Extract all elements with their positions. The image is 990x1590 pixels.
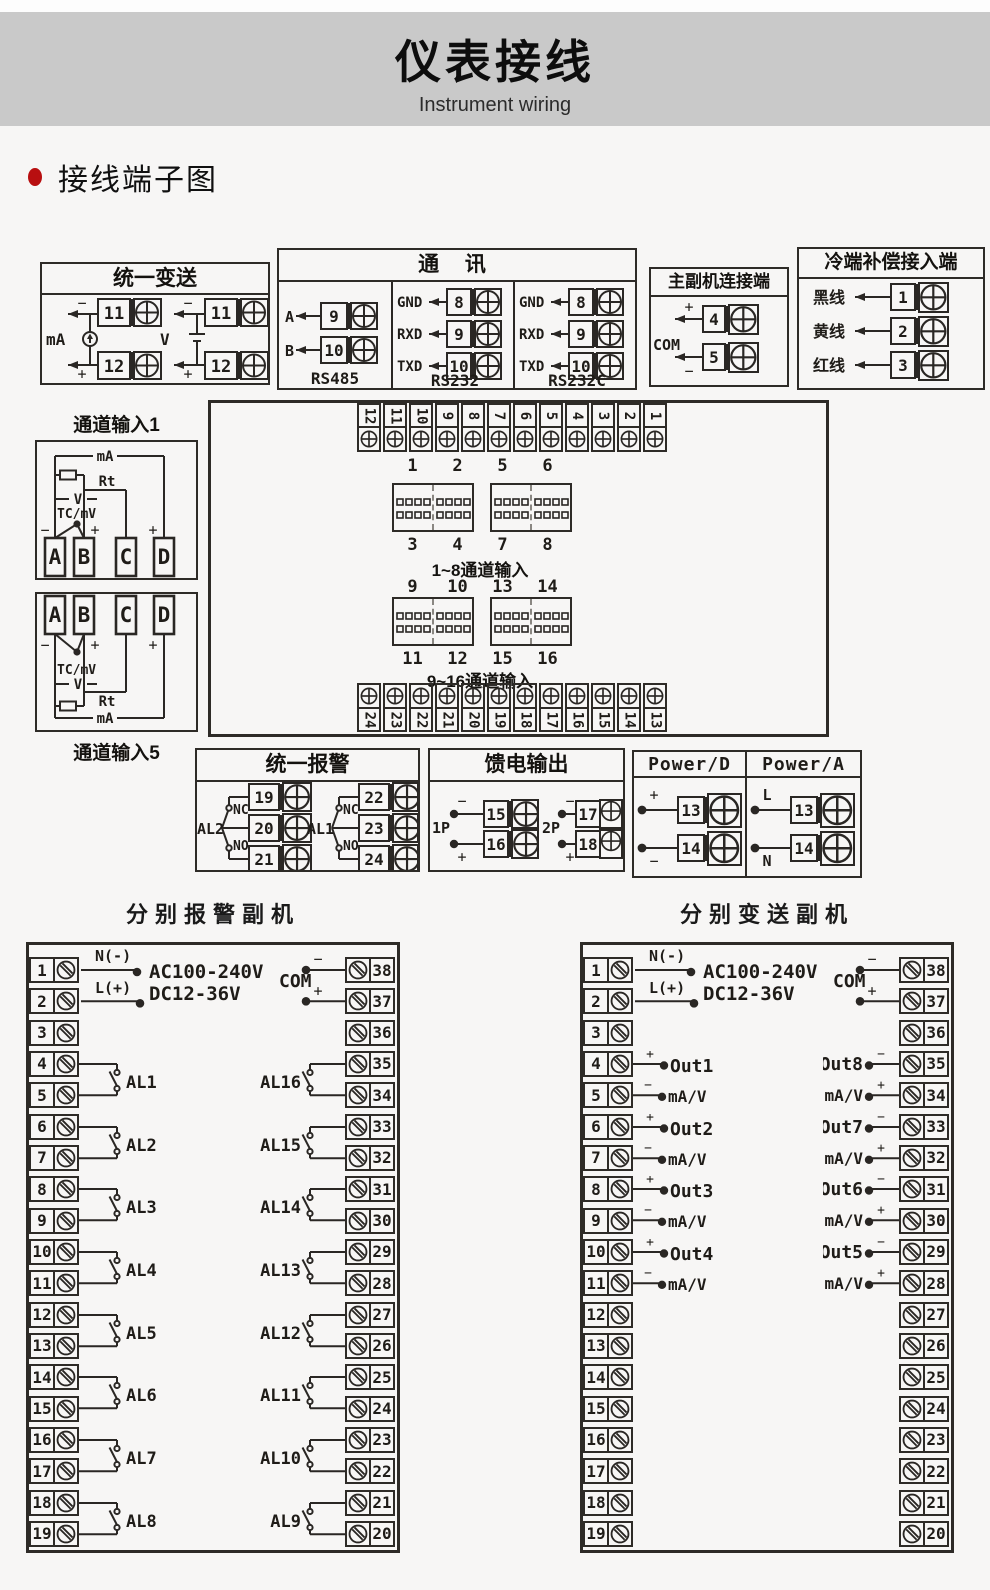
svg-text:+: +	[877, 1078, 885, 1093]
terminal: 10	[29, 1239, 79, 1265]
screw-terminal-icon	[899, 1302, 925, 1328]
svg-text:2P: 2P	[542, 819, 560, 837]
terminal-number: 14	[583, 1364, 609, 1390]
svg-text:2: 2	[898, 322, 908, 341]
svg-text:−: −	[644, 1266, 652, 1281]
terminal-number: 5	[539, 403, 563, 428]
svg-text:+: +	[148, 636, 157, 654]
screw-terminal-icon	[899, 957, 925, 983]
svg-text:D: D	[158, 545, 171, 569]
terminal: 26	[899, 1333, 949, 1359]
terminal-number: 3	[583, 1020, 609, 1046]
svg-text:−: −	[40, 521, 49, 539]
terminal-number: 24	[923, 1396, 949, 1422]
svg-text:AL11: AL11	[260, 1386, 301, 1406]
terminal-number: 12	[357, 403, 381, 428]
terminal-number: 11	[29, 1270, 55, 1296]
terminal-number: 10	[409, 403, 433, 428]
terminal: 3	[583, 1020, 633, 1046]
svg-text:Rt: Rt	[99, 694, 116, 710]
analog-output: Out7 − mA/V +	[823, 1114, 899, 1177]
connector-number: 11	[392, 649, 433, 669]
terminal: 25	[345, 1364, 395, 1390]
terminal: 4	[565, 403, 589, 452]
screw-terminal-icon	[617, 426, 641, 452]
terminal: 37	[899, 988, 949, 1014]
terminal-number: 29	[369, 1239, 395, 1265]
alarm-slave-box: 1 2 3 4 5	[26, 942, 400, 1553]
svg-text:A: A	[49, 545, 62, 569]
analog-output-graphic: Out6 − mA/V +	[823, 1176, 899, 1239]
screw-terminal-icon	[345, 1458, 371, 1484]
terminal-number: 6	[29, 1114, 55, 1140]
screw-terminal-icon	[53, 1458, 79, 1484]
screw-terminal-icon	[607, 1208, 633, 1234]
terminal-number: 4	[29, 1051, 55, 1077]
svg-text:+: +	[90, 521, 99, 539]
alarm-slave-title: 分别报警副机	[26, 897, 400, 929]
feed-output-box: 馈电输出 1P − 15 + 16 2P − 17 + 18	[428, 748, 625, 872]
svg-text:3: 3	[898, 356, 908, 375]
power-d-title: Power/D	[634, 752, 745, 778]
svg-text:21: 21	[254, 850, 273, 869]
svg-text:+: +	[649, 786, 658, 804]
terminal: 1	[29, 957, 79, 983]
svg-text:D: D	[158, 603, 171, 627]
terminal: 2	[29, 988, 79, 1014]
screw-terminal-icon	[53, 1051, 79, 1077]
connector-block-3	[392, 597, 474, 646]
terminal: 5	[539, 403, 563, 452]
terminal: 13	[29, 1333, 79, 1359]
terminal-number: 26	[369, 1333, 395, 1359]
svg-text:NC: NC	[233, 803, 249, 818]
power-d-col: Power/D + 13 − 14	[634, 752, 747, 876]
unified-alarm-box: 统一报警 NC AL2 NO 19 20 21 NC AL1 NO 22 23 …	[195, 748, 420, 872]
svg-text:红线: 红线	[813, 356, 845, 375]
svg-text:GND: GND	[519, 295, 544, 311]
alarm-contact: AL11	[241, 1364, 345, 1427]
terminal: 27	[899, 1302, 949, 1328]
connector-block-2	[490, 483, 572, 532]
terminal: 22	[899, 1458, 949, 1484]
terminal: 34	[899, 1082, 949, 1108]
terminal: 14	[583, 1364, 633, 1390]
transmit-slave-right-outputs: Out8 − mA/V + Out7 −	[823, 1051, 899, 1302]
terminal-number: 9	[435, 403, 459, 428]
terminal: 17	[583, 1458, 633, 1484]
svg-text:8: 8	[576, 293, 586, 312]
terminal-number: 22	[409, 707, 433, 732]
screw-terminal-icon	[345, 957, 371, 983]
alarm-slave-left-terminals: 1 2 3 4 5	[29, 957, 79, 1547]
svg-text:NC: NC	[343, 803, 359, 818]
terminal: 30	[899, 1208, 949, 1234]
svg-text:16: 16	[486, 835, 505, 854]
connector-number: 10	[437, 577, 478, 597]
terminal: 24	[345, 1396, 395, 1422]
screw-terminal-icon	[53, 1396, 79, 1422]
terminal: 3	[29, 1020, 79, 1046]
svg-text:AL14: AL14	[260, 1198, 301, 1218]
terminal-number: 28	[923, 1270, 949, 1296]
cold-comp-box: 冷端补偿接入端 黑线 1 黄线 2 红线 3	[797, 247, 985, 390]
alarm-contact-graphic: AL7	[79, 1427, 189, 1490]
terminal: 33	[899, 1114, 949, 1140]
terminal-number: 21	[435, 707, 459, 732]
comm-box: 通 讯 A 9 B 10 RS485 GND 8 RXD 9 TXD 10 RS…	[277, 248, 637, 390]
screw-terminal-icon	[513, 683, 537, 709]
screw-terminal-icon	[345, 1051, 371, 1077]
svg-text:RS232: RS232	[431, 371, 479, 388]
terminal-number: 24	[369, 1396, 395, 1422]
terminal-number: 7	[29, 1145, 55, 1171]
terminal-number: 9	[583, 1208, 609, 1234]
screw-terminal-icon	[643, 683, 667, 709]
svg-text:黄线: 黄线	[813, 322, 845, 341]
terminal-number: 33	[369, 1114, 395, 1140]
terminal-number: 12	[29, 1302, 55, 1328]
feed-output-title: 馈电输出	[430, 750, 623, 782]
screw-terminal-icon	[565, 683, 589, 709]
analog-output-graphic: + Out3 − mA/V	[633, 1176, 773, 1239]
screw-terminal-icon	[345, 1145, 371, 1171]
terminal: 35	[899, 1051, 949, 1077]
terminal-number: 25	[369, 1364, 395, 1390]
connector-number: 12	[437, 649, 478, 669]
alarm-contact: AL4	[79, 1239, 189, 1302]
screw-terminal-icon	[607, 1458, 633, 1484]
screw-terminal-icon	[345, 1082, 371, 1108]
alarm-contact-graphic: AL8	[79, 1490, 189, 1553]
terminal: 9	[29, 1208, 79, 1234]
terminal-number: 2	[583, 988, 609, 1014]
svg-text:+: +	[877, 1141, 885, 1156]
connector-number: 8	[527, 535, 568, 555]
terminal-number: 20	[923, 1521, 949, 1547]
terminal: 12	[583, 1302, 633, 1328]
svg-text:RS232C: RS232C	[548, 371, 606, 388]
svg-text:V: V	[74, 492, 83, 508]
screw-terminal-icon	[435, 683, 459, 709]
power-a-title: Power/A	[747, 752, 860, 778]
alarm-contact-graphic: AL15	[241, 1114, 345, 1177]
svg-text:−: −	[877, 1239, 885, 1250]
terminal: 14	[617, 683, 641, 732]
terminal: 19	[29, 1521, 79, 1547]
svg-text:Out2: Out2	[670, 1119, 713, 1140]
alarm-slave-right-contacts: AL16 AL15	[241, 1051, 345, 1552]
svg-text:15: 15	[486, 805, 505, 824]
svg-text:AL12: AL12	[260, 1324, 301, 1344]
svg-text:+: +	[646, 1114, 654, 1125]
svg-text:23: 23	[364, 819, 383, 838]
screw-terminal-icon	[345, 1490, 371, 1516]
terminal: 5	[583, 1082, 633, 1108]
svg-text:mA/V: mA/V	[824, 1086, 863, 1105]
svg-text:TC/mV: TC/mV	[57, 507, 96, 522]
alarm-contact-graphic: AL1	[79, 1051, 189, 1114]
alarm-contact: AL12	[241, 1302, 345, 1365]
terminal-number: 7	[487, 403, 511, 428]
screw-terminal-icon	[607, 1396, 633, 1422]
svg-text:9: 9	[329, 307, 339, 326]
screw-terminal-icon	[53, 1208, 79, 1234]
terminal: 1	[643, 403, 667, 452]
terminal-number: 13	[29, 1333, 55, 1359]
screw-terminal-icon	[53, 1145, 79, 1171]
screw-terminal-icon	[607, 1270, 633, 1296]
screw-terminal-icon	[607, 1490, 633, 1516]
terminal-number: 5	[583, 1082, 609, 1108]
power-a-wiring-graphic: L 13 N 14	[747, 778, 858, 874]
terminal: 15	[591, 683, 615, 732]
svg-text:COM: COM	[653, 336, 680, 354]
screw-terminal-icon	[607, 1302, 633, 1328]
screw-terminal-icon	[899, 1490, 925, 1516]
transmit-slave-title: 分别变送副机	[580, 897, 954, 929]
terminal: 36	[899, 1020, 949, 1046]
svg-text:Out7: Out7	[823, 1117, 863, 1138]
screw-terminal-icon	[607, 1051, 633, 1077]
terminal-number: 11	[383, 403, 407, 428]
connector-number: 3	[392, 535, 433, 555]
connector-number: 2	[437, 456, 478, 476]
screw-terminal-icon	[607, 1521, 633, 1547]
terminal-number: 25	[923, 1364, 949, 1390]
terminal-number: 4	[583, 1051, 609, 1077]
terminal-number: 35	[369, 1051, 395, 1077]
terminal-number: 37	[369, 988, 395, 1014]
terminal-number: 32	[923, 1145, 949, 1171]
screw-terminal-icon	[899, 1176, 925, 1202]
terminal: 21	[899, 1490, 949, 1516]
transmit-slave-left-terminals: 1 2 3 4 5	[583, 957, 633, 1547]
alarm-contact: AL16	[241, 1051, 345, 1114]
terminal-number: 20	[461, 707, 485, 732]
terminal-number: 18	[513, 707, 537, 732]
screw-terminal-icon	[53, 1302, 79, 1328]
terminal: 20	[345, 1521, 395, 1547]
terminal-number: 19	[583, 1521, 609, 1547]
terminal-number: 23	[369, 1427, 395, 1453]
terminal: 17	[29, 1458, 79, 1484]
svg-text:20: 20	[254, 819, 273, 838]
svg-text:N: N	[762, 852, 771, 870]
svg-text:DC12-36V: DC12-36V	[149, 983, 241, 1005]
terminal: 37	[345, 988, 395, 1014]
svg-text:14: 14	[681, 839, 700, 858]
screw-terminal-icon	[607, 1333, 633, 1359]
alarm-contact-graphic: AL16	[241, 1051, 345, 1114]
comm-title: 通 讯	[279, 250, 635, 282]
svg-text:19: 19	[254, 788, 273, 807]
screw-terminal-icon	[487, 426, 511, 452]
terminal: 18	[513, 683, 537, 732]
bullet-icon	[28, 168, 42, 186]
terminal-number: 1	[583, 957, 609, 983]
screw-terminal-icon	[607, 1114, 633, 1140]
svg-text:−: −	[644, 1203, 652, 1218]
terminal: 16	[583, 1427, 633, 1453]
terminal-number: 18	[29, 1490, 55, 1516]
mainboard-box: 12 11 10 9 8	[208, 400, 829, 737]
connector-half	[492, 485, 530, 530]
analog-output-graphic: Out7 − mA/V +	[823, 1114, 899, 1177]
terminal-number: 13	[583, 1333, 609, 1359]
screw-terminal-icon	[643, 426, 667, 452]
alarm-contact-graphic: AL5	[79, 1302, 189, 1365]
terminal-number: 15	[29, 1396, 55, 1422]
screw-terminal-icon	[345, 1176, 371, 1202]
terminal: 31	[899, 1176, 949, 1202]
screw-terminal-icon	[345, 1521, 371, 1547]
svg-text:−: −	[313, 950, 322, 968]
alarm-contact: AL3	[79, 1176, 189, 1239]
analog-output: + Out2 − mA/V	[633, 1114, 773, 1177]
unified-transmit-title: 统一变送	[42, 264, 268, 295]
svg-text:AL3: AL3	[126, 1198, 157, 1218]
svg-text:17: 17	[578, 805, 597, 824]
screw-terminal-icon	[53, 1521, 79, 1547]
analog-output-graphic: + Out4 − mA/V	[633, 1239, 773, 1302]
terminal-number: 8	[461, 403, 485, 428]
terminal-number: 31	[923, 1176, 949, 1202]
alarm-slave-left-contacts: AL1 AL2	[79, 1051, 189, 1552]
alarm-contact-graphic: AL4	[79, 1239, 189, 1302]
terminal: 2	[617, 403, 641, 452]
instrument-wiring-page: 仪表接线 Instrument wiring 接线端子图 统一变送 − mA +…	[0, 0, 990, 1590]
svg-text:−: −	[40, 636, 49, 654]
terminal-number: 32	[369, 1145, 395, 1171]
screw-terminal-icon	[899, 1145, 925, 1171]
screw-terminal-icon	[607, 1082, 633, 1108]
svg-text:AL6: AL6	[126, 1386, 157, 1406]
alarm-contact-graphic: AL14	[241, 1176, 345, 1239]
analog-output: Out8 − mA/V +	[823, 1051, 899, 1114]
screw-terminal-icon	[53, 1270, 79, 1296]
terminal-number: 27	[923, 1302, 949, 1328]
terminal: 13	[643, 683, 667, 732]
terminal: 15	[29, 1396, 79, 1422]
terminal: 23	[383, 683, 407, 732]
channel5-label: 通道输入5	[35, 738, 198, 765]
connector-number: 7	[482, 535, 523, 555]
svg-text:11: 11	[104, 304, 124, 324]
terminal-number: 16	[583, 1427, 609, 1453]
svg-text:AC100-240V: AC100-240V	[703, 961, 817, 983]
terminal: 2	[583, 988, 633, 1014]
svg-text:Out3: Out3	[670, 1181, 713, 1202]
channel5-box: A B C D − + + TC/mV V Rt mA	[35, 592, 198, 732]
svg-text:5: 5	[709, 348, 719, 367]
connector-number: 4	[437, 535, 478, 555]
master-slave-box: 主副机连接端 COM + 4 − 5	[649, 267, 789, 387]
screw-terminal-icon	[461, 426, 485, 452]
terminal-number: 16	[29, 1427, 55, 1453]
screw-terminal-icon	[899, 988, 925, 1014]
connector-number: 16	[527, 649, 568, 669]
connector-number: 14	[527, 577, 568, 597]
svg-text:AL13: AL13	[260, 1261, 301, 1281]
screw-terminal-icon	[345, 1333, 371, 1359]
channel1-box: mA Rt V TC/mV − + + A B C D	[35, 440, 198, 580]
screw-terminal-icon	[345, 988, 371, 1014]
unified-transmit-wiring-graphic: − mA + 11 12 − V + 11 12	[42, 295, 268, 383]
alarm-slave-right-terminals: 38 37 36 35 34	[345, 957, 395, 1547]
svg-text:TC/mV: TC/mV	[57, 663, 96, 678]
terminal: 19	[487, 683, 511, 732]
terminal-number: 7	[583, 1145, 609, 1171]
terminal-number: 38	[923, 957, 949, 983]
alarm-contact: AL8	[79, 1490, 189, 1553]
svg-text:13: 13	[681, 801, 700, 820]
svg-text:+: +	[877, 1266, 885, 1281]
svg-text:AL16: AL16	[260, 1073, 301, 1093]
svg-text:A: A	[49, 603, 62, 627]
terminal-number: 33	[923, 1114, 949, 1140]
svg-text:+: +	[684, 298, 693, 316]
svg-text:C: C	[120, 603, 133, 627]
terminal: 15	[583, 1396, 633, 1422]
connector-number: 13	[482, 577, 523, 597]
connector-row1-top-labels: 1256	[392, 456, 568, 476]
connector-row1-bottom-labels: 3478	[392, 535, 568, 555]
svg-text:AL1: AL1	[126, 1073, 157, 1093]
svg-text:−: −	[565, 792, 574, 810]
terminal-number: 30	[923, 1208, 949, 1234]
terminal: 3	[591, 403, 615, 452]
terminal: 10	[583, 1239, 633, 1265]
svg-text:+: +	[77, 365, 86, 383]
svg-text:−: −	[644, 1141, 652, 1156]
screw-terminal-icon	[357, 426, 381, 452]
terminal: 18	[583, 1490, 633, 1516]
svg-text:13: 13	[794, 801, 813, 820]
svg-text:RXD: RXD	[397, 327, 422, 343]
terminal: 24	[357, 683, 381, 732]
terminal-number: 20	[369, 1521, 395, 1547]
svg-text:mA/V: mA/V	[668, 1275, 707, 1294]
screw-terminal-icon	[53, 957, 79, 983]
terminal: 8	[29, 1176, 79, 1202]
screw-terminal-icon	[345, 1302, 371, 1328]
screw-terminal-icon	[607, 1427, 633, 1453]
screw-terminal-icon	[899, 1270, 925, 1296]
mainboard-bottom-terminal-strip: 24 23 22 21 20	[357, 683, 667, 732]
svg-text:L(+): L(+)	[95, 979, 131, 997]
svg-text:12: 12	[211, 357, 231, 377]
terminal: 6	[583, 1114, 633, 1140]
terminal: 6	[29, 1114, 79, 1140]
terminal: 10	[409, 403, 433, 452]
page-subtitle: Instrument wiring	[0, 94, 990, 117]
alarm-slave-com-graphic: COM − +	[279, 945, 345, 1025]
alarm-contact: AL14	[241, 1176, 345, 1239]
connector-row2-top-labels: 9101314	[392, 577, 568, 597]
screw-terminal-icon	[899, 1364, 925, 1390]
svg-text:9: 9	[454, 325, 464, 344]
svg-text:−: −	[877, 1114, 885, 1125]
screw-terminal-icon	[383, 683, 407, 709]
terminal: 38	[345, 957, 395, 983]
terminal-number: 26	[923, 1333, 949, 1359]
section-heading: 接线端子图	[28, 155, 218, 199]
svg-text:N(-): N(-)	[95, 947, 131, 965]
svg-text:−: −	[867, 950, 876, 968]
svg-text:−: −	[684, 362, 693, 380]
connector-block-4	[490, 597, 572, 646]
